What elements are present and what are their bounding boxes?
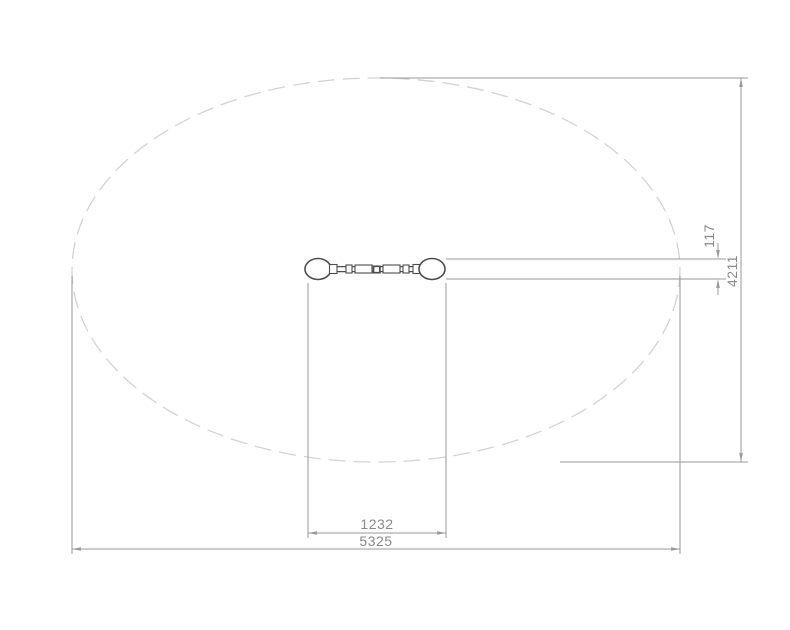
dimension-label: 4211 <box>724 255 740 287</box>
center-marker <box>374 266 380 272</box>
rope-clamp <box>346 265 352 273</box>
rope-clamp <box>383 265 400 273</box>
dimension-label: 1232 <box>360 516 393 532</box>
dimension-label: 117 <box>701 224 717 248</box>
right-post-top-view <box>419 259 445 280</box>
dimension-label: 5325 <box>359 533 392 549</box>
drawing-background <box>0 0 790 630</box>
left-shackle <box>330 265 338 274</box>
left-post-top-view <box>305 259 331 280</box>
technical-drawing-canvas: 117 4211 1232 5325 <box>0 0 790 630</box>
rope-clamp <box>403 265 409 273</box>
rope-clamp <box>355 265 372 273</box>
